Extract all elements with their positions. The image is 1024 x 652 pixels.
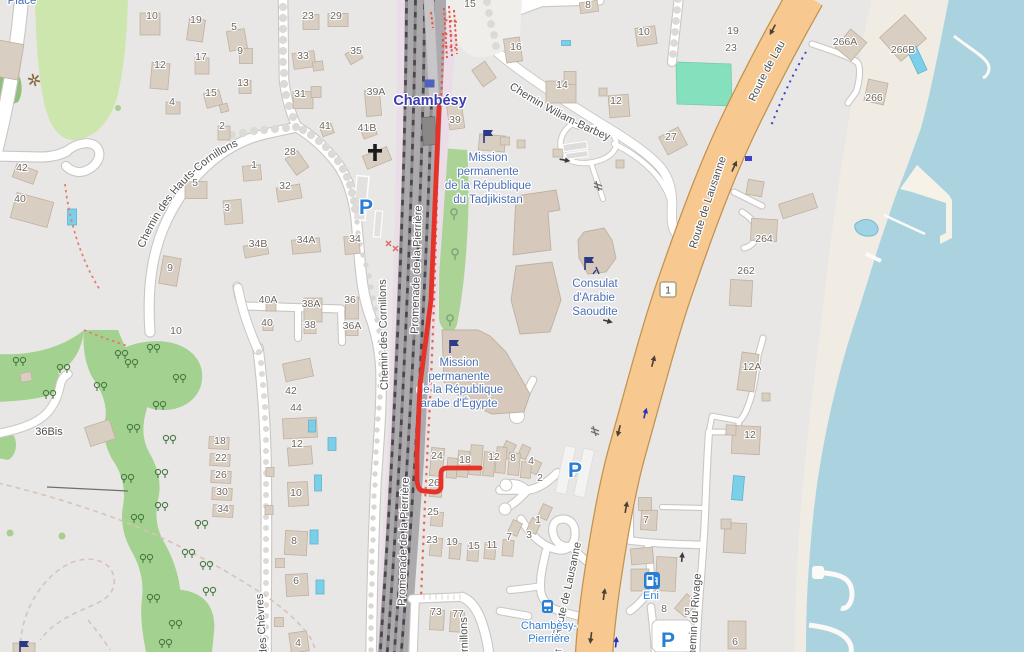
- svg-text:1: 1: [665, 285, 671, 297]
- svg-text:17: 17: [195, 51, 207, 63]
- svg-text:de la République: de la République: [417, 384, 503, 396]
- svg-text:40A: 40A: [259, 294, 278, 306]
- svg-text:15: 15: [468, 540, 480, 552]
- svg-text:34: 34: [217, 503, 229, 515]
- svg-text:permanente: permanente: [428, 371, 489, 383]
- svg-text:4: 4: [528, 455, 534, 467]
- svg-text:12: 12: [291, 438, 303, 450]
- svg-text:P: P: [359, 196, 373, 219]
- svg-text:9: 9: [167, 262, 173, 274]
- svg-text:Chemin des Cornillons: Chemin des Cornillons: [377, 279, 391, 391]
- svg-text:36Bis: 36Bis: [35, 426, 63, 438]
- svg-text:arabe d'Égypte: arabe d'Égypte: [420, 397, 497, 410]
- svg-text:du Tadjikistan: du Tadjikistan: [453, 194, 522, 206]
- svg-text:262: 262: [737, 265, 755, 277]
- svg-text:266A: 266A: [833, 36, 858, 48]
- svg-text:18: 18: [214, 435, 226, 447]
- svg-text:Eni: Eni: [643, 590, 659, 602]
- svg-text:23: 23: [426, 534, 438, 546]
- svg-text:Mission: Mission: [440, 357, 479, 369]
- svg-text:34B: 34B: [249, 238, 268, 250]
- svg-text:24: 24: [431, 450, 443, 462]
- svg-text:32: 32: [279, 180, 291, 192]
- svg-text:28: 28: [284, 146, 296, 158]
- svg-text:8: 8: [291, 535, 297, 547]
- svg-text:Place: Place: [8, 0, 37, 7]
- svg-text:15: 15: [464, 0, 476, 10]
- svg-text:Consulat: Consulat: [572, 278, 618, 290]
- svg-text:19: 19: [727, 25, 739, 37]
- svg-text:9: 9: [237, 45, 243, 57]
- svg-text:8: 8: [661, 603, 667, 615]
- svg-text:Chambésy-: Chambésy-: [521, 620, 578, 632]
- svg-text:42: 42: [285, 385, 297, 397]
- svg-text:2: 2: [219, 120, 225, 132]
- svg-text:10: 10: [638, 26, 650, 38]
- svg-text:42: 42: [16, 162, 28, 174]
- svg-text:25: 25: [427, 506, 439, 518]
- svg-text:41: 41: [319, 120, 331, 132]
- svg-text:1: 1: [251, 159, 257, 171]
- svg-text:7: 7: [643, 514, 649, 526]
- svg-text:16: 16: [510, 41, 522, 53]
- svg-text:Saoudite: Saoudite: [572, 306, 617, 318]
- svg-text:4: 4: [295, 637, 301, 649]
- svg-text:1: 1: [535, 514, 541, 526]
- svg-text:P: P: [568, 459, 582, 482]
- svg-text:30: 30: [216, 486, 228, 498]
- svg-text:permanente: permanente: [457, 166, 518, 178]
- svg-text:de la République: de la République: [445, 180, 531, 192]
- svg-text:38: 38: [304, 319, 316, 331]
- svg-text:12A: 12A: [743, 361, 762, 373]
- svg-text:10: 10: [290, 487, 302, 499]
- svg-text:12: 12: [610, 95, 622, 107]
- svg-text:2: 2: [537, 472, 543, 484]
- svg-text:5: 5: [231, 21, 237, 33]
- svg-text:39A: 39A: [367, 86, 386, 98]
- svg-text:266: 266: [865, 92, 883, 104]
- svg-text:18: 18: [459, 454, 471, 466]
- svg-text:38A: 38A: [302, 298, 321, 310]
- svg-text:d'Arabie: d'Arabie: [573, 292, 615, 304]
- svg-text:3: 3: [224, 202, 230, 214]
- svg-text:39: 39: [449, 114, 461, 126]
- svg-text:33: 33: [297, 50, 309, 62]
- svg-text:15: 15: [205, 87, 217, 99]
- svg-text:34: 34: [349, 233, 361, 245]
- svg-text:6: 6: [732, 636, 738, 648]
- svg-text:73: 73: [430, 606, 442, 618]
- svg-text:23: 23: [725, 42, 737, 54]
- svg-text:12: 12: [488, 451, 500, 463]
- svg-text:Pierrière: Pierrière: [528, 633, 570, 645]
- svg-text:19: 19: [190, 14, 202, 26]
- svg-text:264: 264: [755, 233, 773, 245]
- svg-text:36: 36: [344, 294, 356, 306]
- svg-text:40: 40: [14, 193, 26, 205]
- svg-text:266B: 266B: [891, 44, 916, 56]
- svg-text:8: 8: [585, 0, 591, 11]
- svg-text:7: 7: [506, 531, 512, 543]
- svg-text:ornillons: ornillons: [458, 616, 471, 652]
- svg-text:13: 13: [237, 77, 249, 89]
- svg-text:Mission: Mission: [469, 152, 508, 164]
- svg-text:35: 35: [350, 45, 362, 57]
- svg-text:3: 3: [526, 529, 532, 541]
- svg-text:34A: 34A: [297, 234, 316, 246]
- svg-text:41B: 41B: [358, 122, 377, 134]
- svg-text:10: 10: [170, 325, 182, 337]
- svg-text:6: 6: [293, 575, 299, 587]
- svg-text:19: 19: [446, 536, 458, 548]
- svg-text:14: 14: [556, 79, 568, 91]
- svg-text:31: 31: [294, 88, 306, 100]
- svg-text:22: 22: [215, 452, 227, 464]
- svg-text:26: 26: [215, 469, 227, 481]
- svg-text:12: 12: [154, 59, 166, 71]
- svg-text:29: 29: [330, 10, 342, 22]
- svg-text:26: 26: [428, 477, 440, 489]
- svg-text:23: 23: [302, 10, 314, 22]
- svg-text:36A: 36A: [343, 320, 362, 332]
- svg-text:12: 12: [744, 429, 756, 441]
- svg-text:P: P: [661, 629, 675, 652]
- svg-text:11: 11: [487, 539, 498, 551]
- svg-text:40: 40: [261, 317, 273, 329]
- svg-text:4: 4: [169, 96, 175, 108]
- svg-text:Chambésy: Chambésy: [393, 93, 466, 109]
- svg-text:27: 27: [665, 131, 677, 143]
- svg-text:8: 8: [510, 452, 516, 464]
- svg-text:44: 44: [290, 402, 302, 414]
- svg-text:10: 10: [146, 10, 158, 22]
